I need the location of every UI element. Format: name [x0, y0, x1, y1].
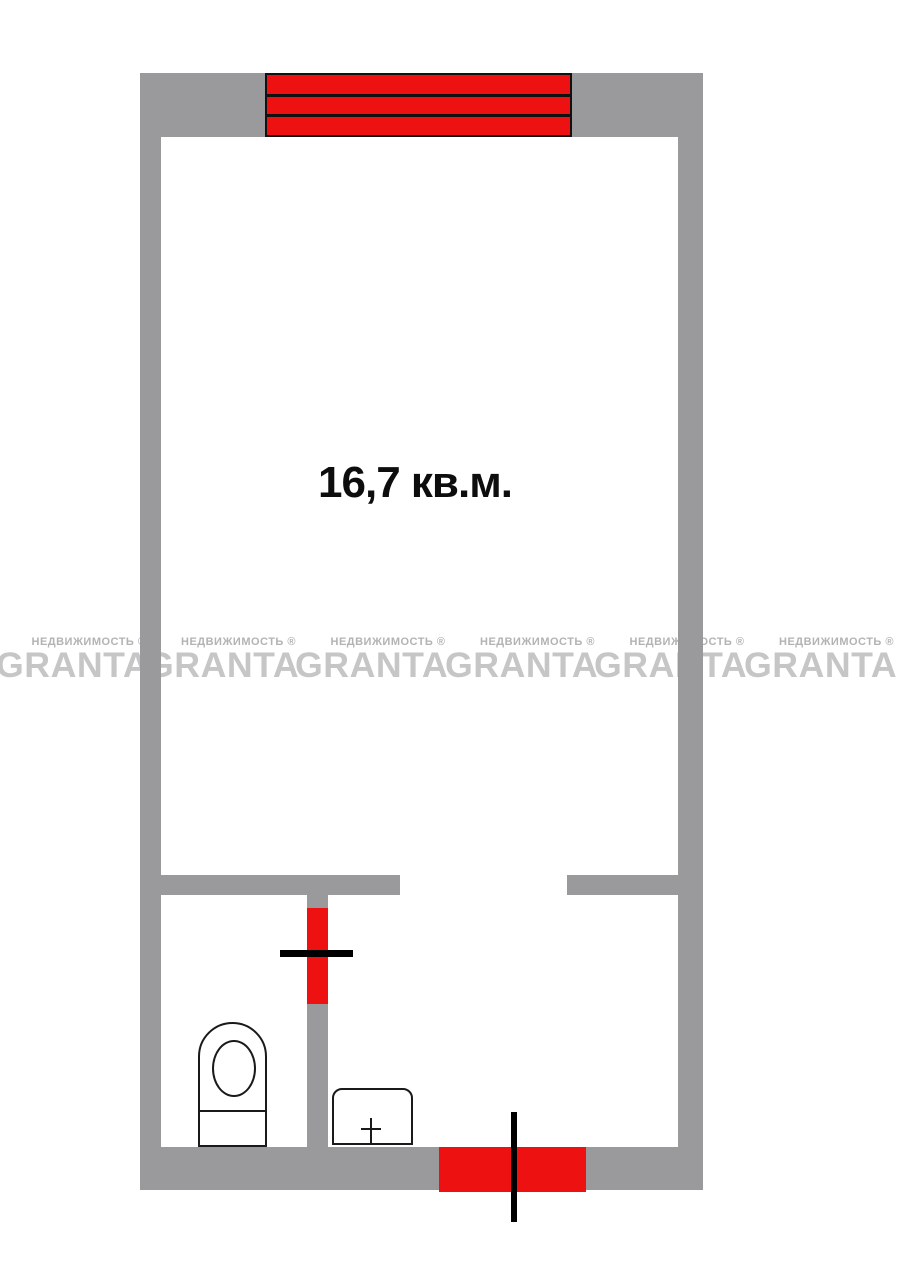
watermark-unit: НЕДВИЖИМОСТЬ ® GRANTA: [598, 636, 748, 688]
watermark-row: НЕДВИЖИМОСТЬ ® GRANTA НЕДВИЖИМОСТЬ ® GRA…: [0, 636, 897, 688]
watermark-brand-logo: GRANTA: [0, 649, 150, 683]
wall-bottom: [140, 1147, 703, 1190]
wall-right: [678, 73, 703, 1190]
window-pane-line: [267, 114, 570, 117]
watermark-brand-logo: GRANTA: [445, 649, 598, 683]
watermark-brand-logo: GRANTA: [295, 649, 448, 683]
watermark-unit: НЕДВИЖИМОСТЬ ® GRANTA: [150, 636, 300, 688]
sink-icon: [332, 1088, 413, 1145]
watermark-unit: НЕДВИЖИМОСТЬ ® GRANTA: [299, 636, 449, 688]
floor-plan-canvas: НЕДВИЖИМОСТЬ ® GRANTA НЕДВИЖИМОСТЬ ® GRA…: [0, 0, 897, 1275]
toilet-bowl-icon: [212, 1040, 256, 1097]
sink-faucet-cross: [361, 1128, 381, 1130]
toilet-tank-line: [200, 1110, 265, 1112]
wall-left: [140, 73, 161, 1190]
window-pane-line: [267, 94, 570, 97]
watermark-brand-logo: GRANTA: [744, 649, 897, 683]
bathroom-door-swing-line: [280, 950, 353, 957]
entry-door-swing-line: [511, 1112, 517, 1222]
watermark-brand-logo: GRANTA: [146, 649, 299, 683]
watermark-brand-logo: GRANTA: [594, 649, 747, 683]
watermark-unit: НЕДВИЖИМОСТЬ ® GRANTA: [0, 636, 150, 688]
wall-interior-vertical-lower: [307, 1004, 328, 1147]
room-area-label: 16,7 кв.м.: [290, 458, 540, 508]
wall-interior-horizontal-left: [161, 875, 400, 895]
watermark-unit: НЕДВИЖИМОСТЬ ® GRANTA: [748, 636, 897, 688]
window-icon: [265, 73, 572, 137]
sink-faucet-cross: [370, 1118, 372, 1143]
watermark-unit: НЕДВИЖИМОСТЬ ® GRANTA: [449, 636, 599, 688]
wall-interior-vertical-upper: [307, 875, 328, 908]
wall-interior-horizontal-right: [567, 875, 678, 895]
toilet-icon: [198, 1022, 267, 1147]
